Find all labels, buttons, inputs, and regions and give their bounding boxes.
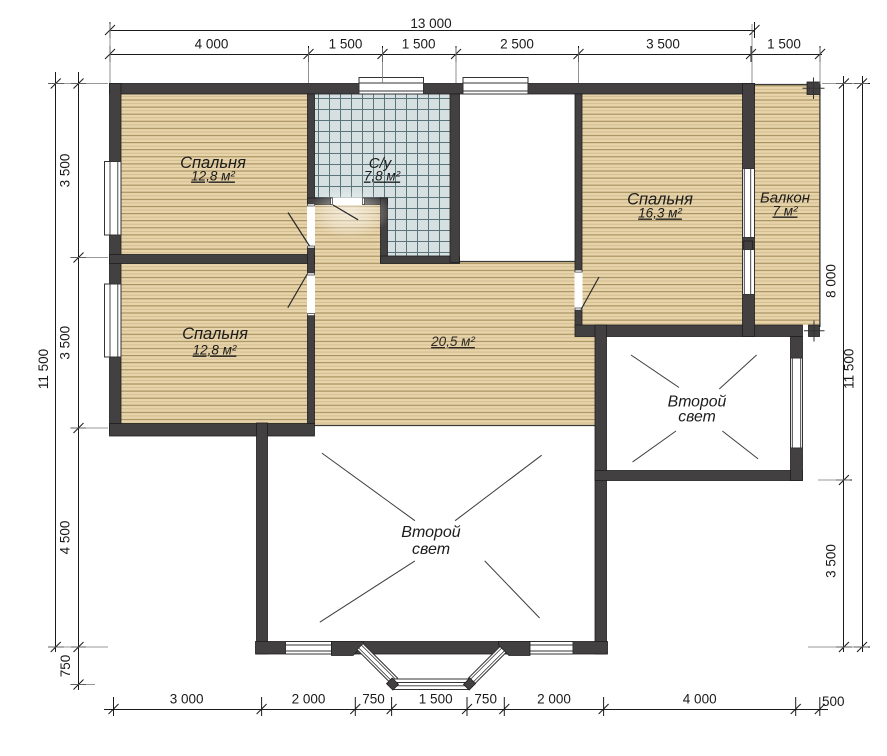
svg-text:1 500: 1 500 [419, 692, 453, 707]
svg-text:16,3 м²: 16,3 м² [638, 206, 682, 221]
svg-text:750: 750 [362, 692, 385, 707]
svg-text:свет: свет [678, 409, 716, 426]
svg-text:3 000: 3 000 [170, 692, 204, 707]
svg-text:Второй: Второй [401, 524, 461, 541]
svg-text:11 500: 11 500 [36, 349, 51, 389]
svg-text:500: 500 [822, 694, 845, 709]
svg-text:8 000: 8 000 [824, 264, 839, 298]
svg-text:750: 750 [474, 692, 497, 707]
svg-text:1 500: 1 500 [767, 37, 801, 52]
svg-text:2 000: 2 000 [292, 692, 326, 707]
svg-text:Спальня: Спальня [182, 325, 248, 343]
svg-text:3 500: 3 500 [646, 37, 680, 52]
svg-text:4 000: 4 000 [683, 692, 717, 707]
svg-text:3 500: 3 500 [58, 154, 73, 188]
svg-text:20,5 м²: 20,5 м² [430, 334, 475, 349]
svg-text:2 000: 2 000 [537, 692, 571, 707]
svg-text:12,8 м²: 12,8 м² [191, 169, 235, 184]
svg-text:750: 750 [58, 655, 73, 678]
svg-text:3 500: 3 500 [824, 544, 839, 578]
svg-text:свет: свет [412, 541, 450, 558]
svg-text:12,8 м²: 12,8 м² [193, 343, 237, 358]
svg-text:1 500: 1 500 [402, 37, 436, 52]
svg-text:11 500: 11 500 [842, 349, 857, 389]
svg-text:1 500: 1 500 [329, 37, 363, 52]
svg-text:2 500: 2 500 [500, 37, 534, 52]
svg-text:4 500: 4 500 [58, 521, 73, 555]
svg-text:7,8 м²: 7,8 м² [364, 169, 401, 184]
svg-text:4 000: 4 000 [195, 37, 229, 52]
svg-text:13 000: 13 000 [410, 16, 451, 31]
svg-text:3 500: 3 500 [58, 326, 73, 360]
svg-text:7 м²: 7 м² [772, 204, 798, 219]
